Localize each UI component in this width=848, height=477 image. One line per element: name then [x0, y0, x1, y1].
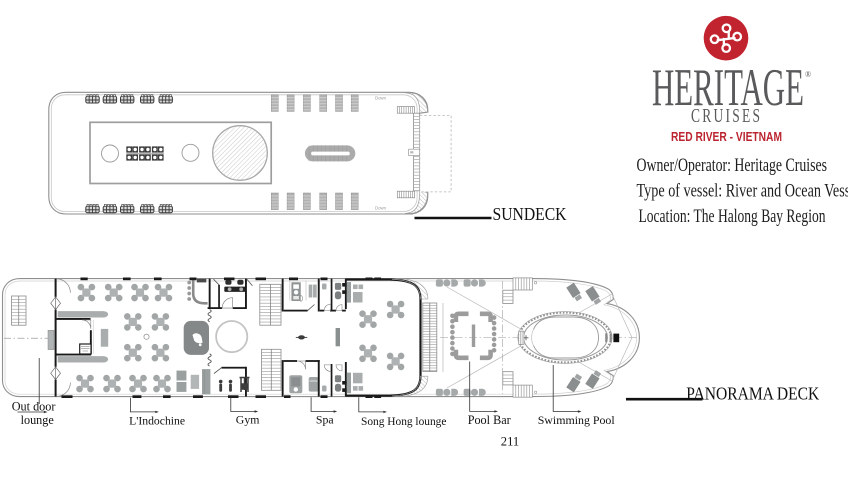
svg-text:Owner/Operator: Heritage Cruis: Owner/Operator: Heritage Cruises [637, 155, 828, 176]
svg-text:Down: Down [375, 96, 387, 101]
svg-text:PANORAMA DECK: PANORAMA DECK [686, 384, 819, 404]
svg-text:Spa: Spa [316, 412, 334, 426]
svg-text:Song Hong lounge: Song Hong lounge [361, 416, 446, 428]
svg-text:211: 211 [501, 435, 519, 449]
svg-text:lounge: lounge [21, 413, 54, 427]
svg-text:Swimming Pool: Swimming Pool [538, 413, 616, 427]
svg-text:Location: The Halong Bay Regio: Location: The Halong Bay Region [639, 206, 826, 227]
svg-text:Gym: Gym [236, 412, 260, 426]
svg-text:L'Indochine: L'Indochine [129, 414, 185, 427]
svg-text:Down: Down [375, 206, 387, 211]
svg-text:®: ® [805, 70, 811, 79]
svg-text:Pool Bar: Pool Bar [468, 413, 511, 427]
svg-text:Out door: Out door [12, 400, 56, 414]
svg-text:SUNDECK: SUNDECK [493, 204, 567, 224]
svg-text:Type of vessel: River and Ocea: Type of vessel: River and Ocean Vessel [637, 180, 848, 201]
svg-text:CRUISES: CRUISES [691, 105, 760, 127]
svg-text:RED RIVER - VIETNAM: RED RIVER - VIETNAM [671, 130, 782, 144]
